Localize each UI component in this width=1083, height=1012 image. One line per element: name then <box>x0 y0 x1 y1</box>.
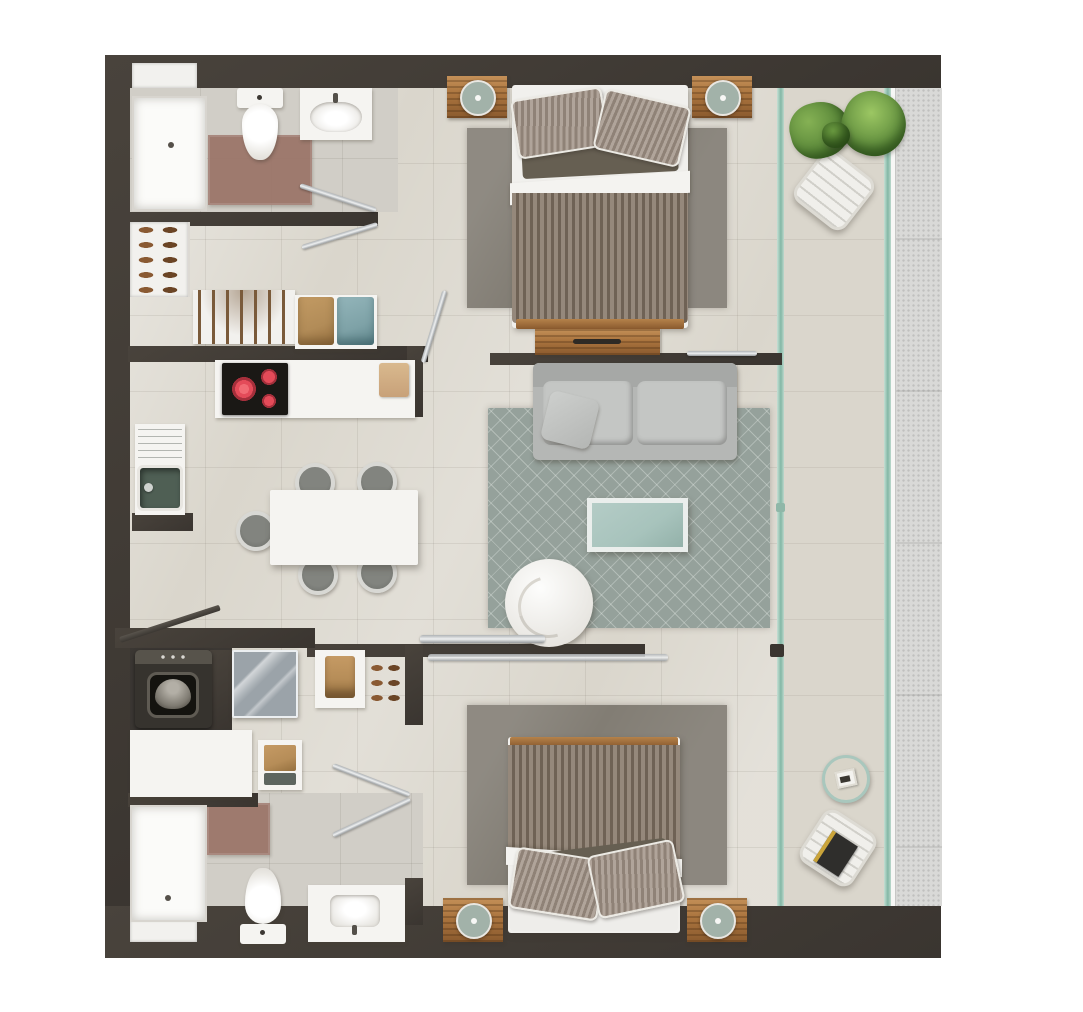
sink-2-faucet <box>352 925 357 935</box>
stool-seat <box>264 773 296 785</box>
shower-1-drain <box>168 142 174 148</box>
folded-shirt <box>325 656 355 698</box>
sink-1-basin <box>310 102 362 132</box>
cutting-board <box>379 363 409 397</box>
balcony-railing-glass <box>884 88 891 906</box>
shower-2 <box>130 805 207 922</box>
nightstand-2-left <box>443 898 503 942</box>
storage-shelf <box>295 295 377 349</box>
wall-laundry-east-lower <box>405 878 423 925</box>
wall-top <box>105 55 941 88</box>
window-handle <box>770 644 784 657</box>
dishwasher <box>232 650 298 718</box>
sink-2-basin <box>330 895 380 927</box>
wall-niche-bottom <box>130 920 197 942</box>
toilet-2-bowl <box>245 868 281 924</box>
toilet-2 <box>239 866 287 944</box>
washer-door <box>147 672 199 718</box>
sink-1 <box>300 88 372 140</box>
plant-leaf-cluster-3 <box>822 122 850 148</box>
potted-plant <box>788 90 906 162</box>
lamp-1-left <box>460 80 496 116</box>
nightstand-2-right <box>687 898 747 942</box>
washing-machine <box>135 650 212 728</box>
wall-sink-south <box>132 513 193 531</box>
kitchen-sink-unit <box>135 424 185 515</box>
storage-box-tan <box>298 297 334 345</box>
nightstand-1-left <box>447 76 507 118</box>
sofa <box>533 363 737 460</box>
terrace-table-tray <box>834 768 857 789</box>
cooktop <box>222 363 288 415</box>
facade-ledge <box>895 88 942 906</box>
tray-item <box>840 775 851 783</box>
sofa-cushion-right <box>637 381 727 445</box>
sink-2-vanity <box>308 885 405 942</box>
dresser-handle <box>573 339 621 344</box>
toilet-1-bowl <box>242 104 278 160</box>
swivel-armchair <box>505 559 593 647</box>
bedroom2-sliding-track-1 <box>420 635 545 643</box>
bedroom2-sliding-track-2 <box>428 654 668 661</box>
shoe-rack <box>130 222 190 297</box>
shower-2-drain <box>165 895 171 901</box>
wall-niche-top <box>132 63 197 88</box>
toilet-1-button <box>257 95 262 100</box>
stool-with-towel <box>258 740 302 790</box>
bedroom1-door-track <box>687 351 757 356</box>
nightstand-1-right <box>692 76 752 118</box>
bed-1-foot-rail <box>516 319 684 329</box>
wall-laundry-east-upper <box>405 645 423 725</box>
plant-leaf-cluster-2 <box>833 83 915 165</box>
window-joint <box>776 503 785 512</box>
bed-2 <box>508 737 680 933</box>
floor-plan-image <box>0 0 1083 1012</box>
sink-1-faucet <box>333 93 338 103</box>
laundry-shoe-shelf <box>367 660 405 705</box>
hanger-rail <box>193 290 295 344</box>
wall-left <box>105 55 130 958</box>
stool-towel <box>264 745 296 771</box>
lamp-1-right <box>705 80 741 116</box>
coffee-table <box>587 498 688 552</box>
apartment-plan <box>105 55 941 958</box>
dresser <box>535 329 660 355</box>
terrace-chair-pillow <box>813 830 858 877</box>
shower-1 <box>132 96 207 211</box>
window-wall-glass <box>777 88 784 906</box>
kitchen-sink-basin <box>137 465 183 511</box>
washer-control-panel <box>135 650 212 664</box>
terrace-side-table <box>822 755 870 803</box>
storage-box-teal <box>337 297 374 345</box>
toilet-2-button <box>260 930 265 935</box>
laundry-closet-shelf <box>315 650 365 708</box>
bath-mat-2 <box>207 803 270 855</box>
wall-laundry-divider <box>210 650 232 729</box>
lamp-2-right <box>700 903 736 939</box>
washer-drum <box>155 679 191 709</box>
bed-1 <box>512 85 688 328</box>
drainboard <box>138 428 182 462</box>
laundry-counter <box>130 730 252 797</box>
toilet-1 <box>236 88 284 166</box>
kitchen-faucet <box>144 483 153 492</box>
lamp-2-left <box>456 903 492 939</box>
dining-table <box>270 490 418 565</box>
bed-1-blanket <box>512 193 688 323</box>
